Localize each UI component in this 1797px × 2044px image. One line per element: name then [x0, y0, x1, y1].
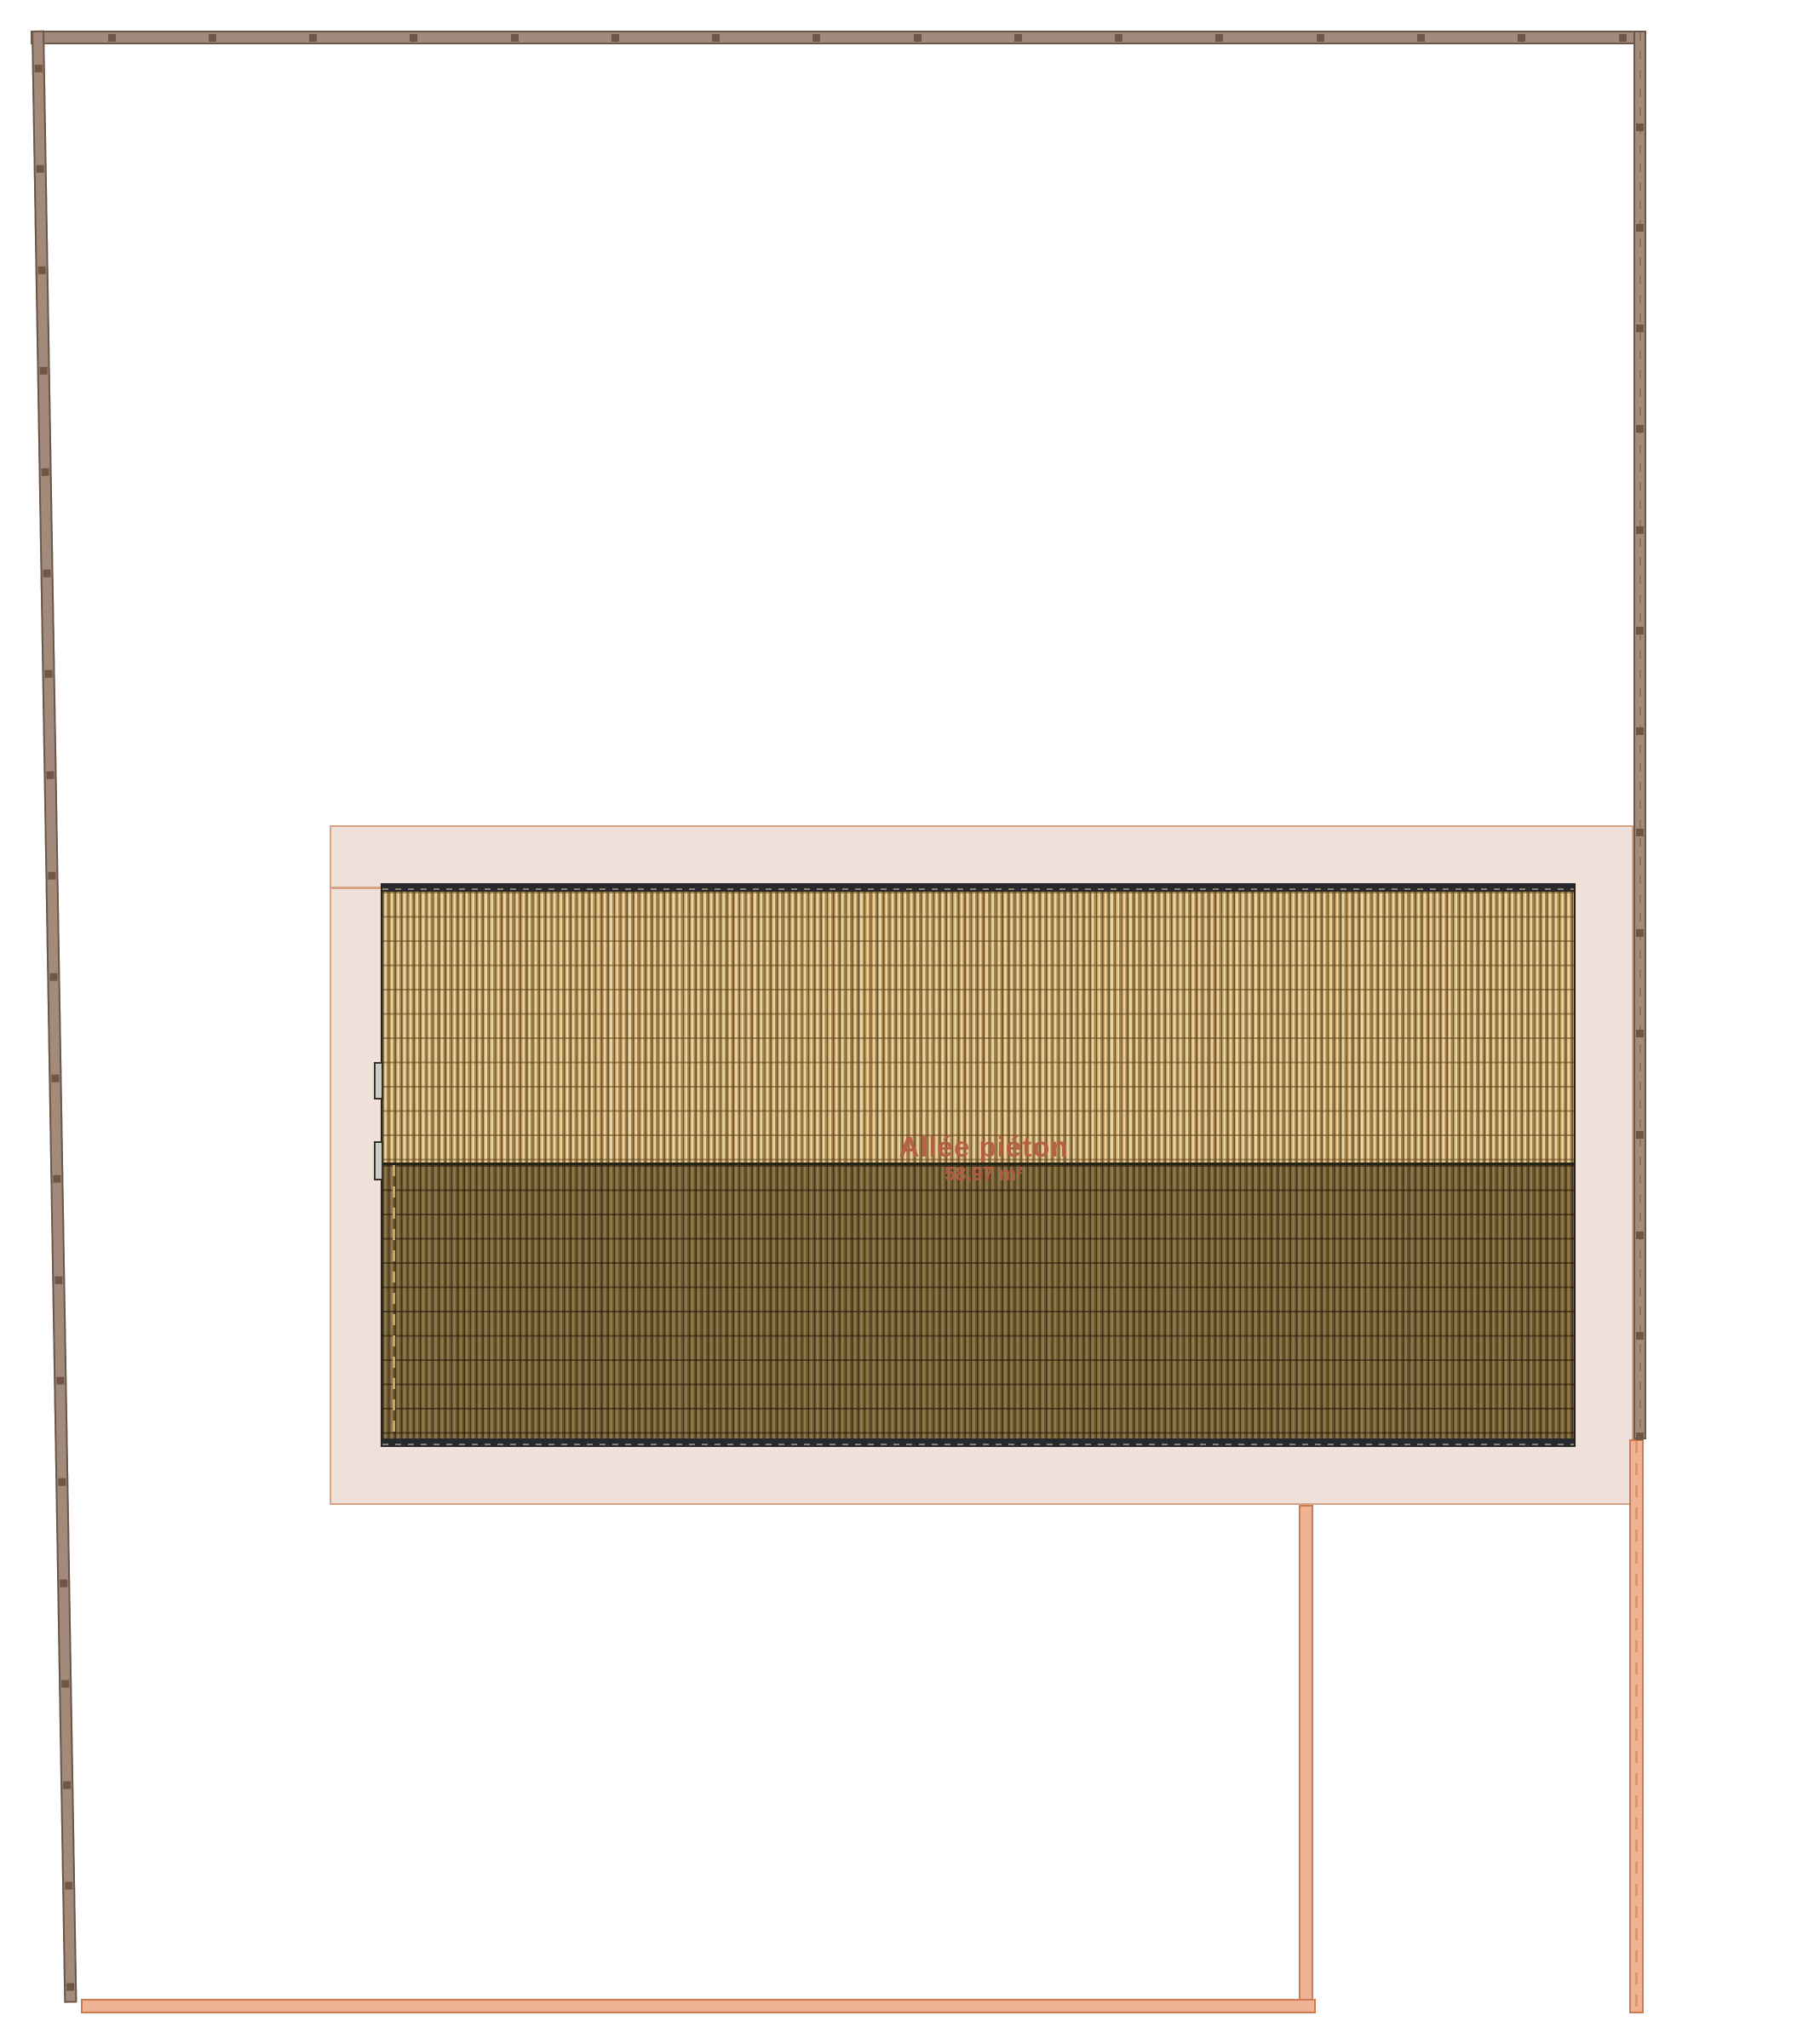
fence-right[interactable] — [1633, 31, 1646, 1439]
fence-post — [37, 165, 44, 173]
roof-upper-slope — [382, 892, 1574, 1163]
fence-post — [43, 569, 50, 577]
fence-post — [209, 34, 216, 42]
fence-post — [1636, 829, 1644, 836]
boundary-line-right[interactable] — [1629, 1439, 1644, 2013]
fence-post — [1636, 1332, 1644, 1340]
site-plan-canvas: Allée piéton 58.97 m² — [0, 0, 1797, 2044]
fence-post — [60, 1579, 67, 1587]
fence-top[interactable] — [31, 31, 1646, 44]
fence-post — [511, 34, 519, 42]
fence-post — [1636, 1232, 1644, 1239]
fence-post — [712, 34, 720, 42]
fence-post — [1636, 929, 1644, 937]
fence-post — [1215, 34, 1223, 42]
walkway-label-area: 58.97 m² — [898, 1163, 1068, 1184]
fence-left[interactable] — [32, 31, 77, 2003]
roof-edge-tab-1 — [374, 1062, 383, 1100]
fence-post — [42, 468, 49, 476]
fence-post — [49, 973, 57, 981]
fence-post — [63, 1781, 71, 1788]
fence-post — [309, 34, 317, 42]
fence-post — [44, 670, 52, 678]
fence-post — [53, 1175, 60, 1183]
roof-edge-tab-2 — [374, 1141, 383, 1180]
fence-post — [1636, 727, 1644, 735]
fence-post — [66, 1983, 74, 1990]
fence-post — [46, 771, 54, 778]
roof-lower-slope — [382, 1165, 1574, 1438]
fence-post — [40, 367, 48, 375]
fence-post — [1115, 34, 1122, 42]
fence-post — [1636, 224, 1644, 232]
fence-post — [1619, 34, 1627, 42]
fence-post — [1636, 627, 1644, 634]
fence-post — [914, 34, 921, 42]
fence-post — [1518, 34, 1525, 42]
walkway-edge-line — [330, 887, 382, 889]
fence-post — [1636, 425, 1644, 433]
fence-post — [61, 1680, 69, 1688]
fence-post — [1317, 34, 1324, 42]
fence-post — [1636, 1433, 1644, 1440]
fence-post — [56, 1377, 64, 1385]
fence-post — [38, 266, 46, 273]
fence-post — [1636, 123, 1644, 131]
hidden-edge-dashed-line — [393, 1165, 395, 1437]
fence-post — [58, 1478, 66, 1485]
fence-post — [1636, 1030, 1644, 1037]
fence-post — [65, 1882, 72, 1890]
roof-eave-bottom — [382, 1438, 1574, 1447]
fence-post — [51, 1074, 59, 1082]
boundary-line-bottom[interactable] — [81, 1999, 1316, 2013]
fence-post — [55, 1276, 62, 1283]
walkway-label: Allée piéton 58.97 m² — [898, 1133, 1068, 1184]
boundary-line-middle[interactable] — [1299, 1505, 1313, 2012]
fence-post — [108, 34, 116, 42]
fence-post — [1014, 34, 1022, 42]
fence-post — [812, 34, 820, 42]
fence-post — [1417, 34, 1425, 42]
walkway-label-title: Allée piéton — [898, 1133, 1068, 1162]
fence-post — [1636, 526, 1644, 534]
fence-post — [48, 872, 55, 880]
roof-eave-top — [382, 883, 1574, 892]
fence-post — [1636, 324, 1644, 332]
fence-post — [410, 34, 417, 42]
fence-post — [1636, 1131, 1644, 1139]
fence-post — [35, 64, 43, 72]
fence-post — [611, 34, 619, 42]
